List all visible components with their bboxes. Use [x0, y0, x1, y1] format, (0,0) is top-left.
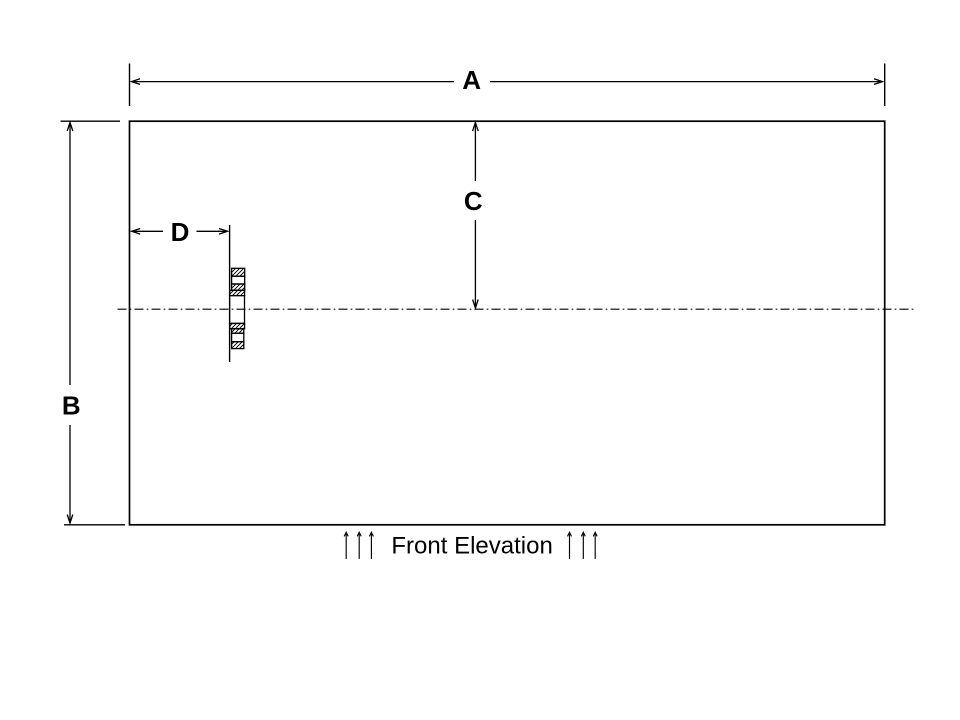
- svg-text:A: A: [462, 65, 481, 95]
- svg-text:C: C: [464, 186, 483, 216]
- svg-text:Front Elevation: Front Elevation: [391, 532, 552, 559]
- svg-text:B: B: [62, 390, 81, 420]
- svg-text:D: D: [171, 217, 190, 247]
